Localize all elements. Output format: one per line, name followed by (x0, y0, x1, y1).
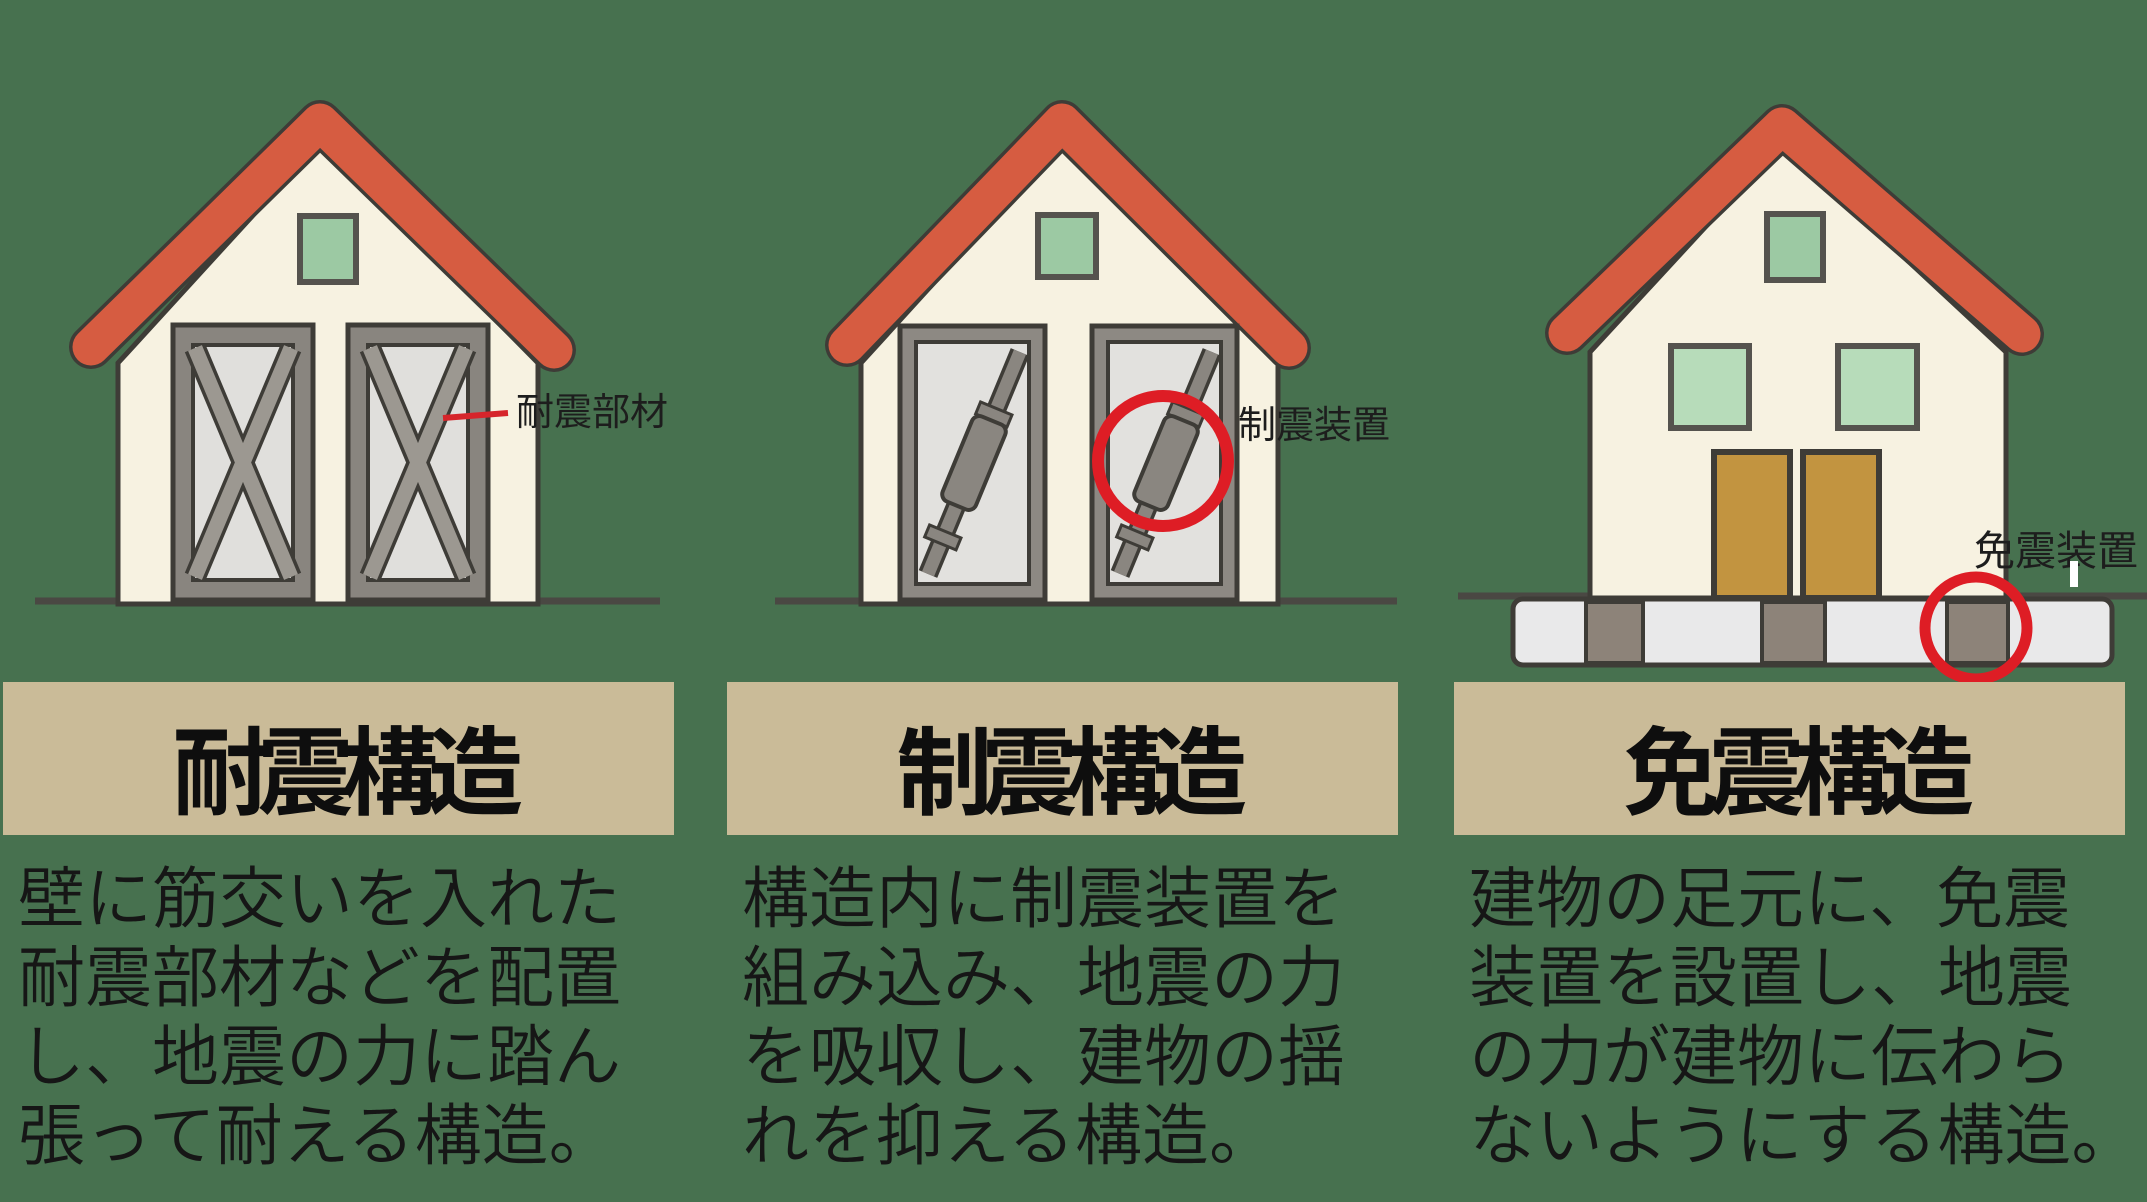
svg-text:免震装置: 免震装置 (1974, 517, 2138, 577)
svg-text:制震装置: 制震装置 (1238, 394, 1390, 449)
svg-text:耐震部材: 耐震部材 (516, 381, 668, 436)
